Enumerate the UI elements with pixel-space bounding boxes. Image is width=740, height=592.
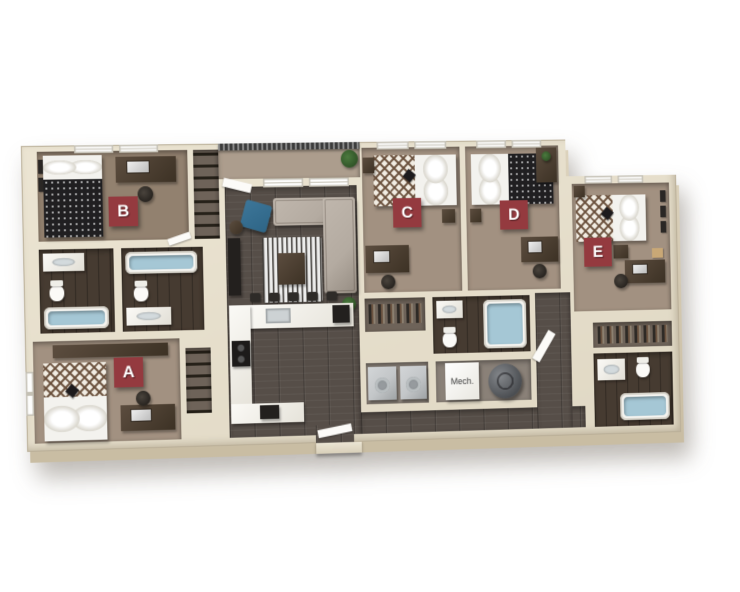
bed-a xyxy=(43,362,107,441)
bed-pillows xyxy=(43,155,102,180)
desk-a xyxy=(120,404,175,431)
nightstand xyxy=(470,209,481,223)
closet-e xyxy=(593,321,672,348)
vanity xyxy=(43,253,85,272)
mech-label: Mech. xyxy=(451,376,474,386)
bedroom-b-window xyxy=(74,145,113,153)
vanity xyxy=(436,300,463,318)
bathroom-2-floor xyxy=(121,247,204,332)
bed-pillows xyxy=(612,194,646,241)
unit-label-b: B xyxy=(108,196,138,226)
desk-e xyxy=(625,259,666,283)
bed-pillows xyxy=(44,396,108,442)
desk-c xyxy=(365,245,409,273)
tv-console xyxy=(228,238,242,295)
cooktop xyxy=(260,405,279,419)
bar-stool xyxy=(269,293,280,302)
bathroom-cd-floor xyxy=(432,295,530,354)
unit-label-e: E xyxy=(584,237,612,266)
coffee-table xyxy=(278,253,305,285)
bed-comforter xyxy=(43,362,107,398)
bedroom-c-window xyxy=(414,141,446,149)
stove xyxy=(232,341,251,367)
bathroom-1-floor xyxy=(39,248,115,333)
bed-e xyxy=(576,194,647,241)
closet-b xyxy=(193,150,220,239)
bar-stool xyxy=(307,292,318,301)
vanity xyxy=(126,307,171,326)
floor-plan: B A xyxy=(21,138,681,452)
bedroom-e-window xyxy=(584,176,612,184)
washer xyxy=(368,366,397,400)
bathtub xyxy=(125,251,197,274)
bed-b xyxy=(43,155,104,238)
toilet xyxy=(49,285,64,301)
countertop-appliance xyxy=(332,305,349,323)
pantry-closet xyxy=(185,347,211,413)
living-window xyxy=(309,177,349,186)
dryer xyxy=(400,366,427,400)
bed-pillows xyxy=(471,154,509,205)
closet-shelf-items xyxy=(598,325,668,344)
bedroom-c-window xyxy=(376,141,408,149)
bed-comforter xyxy=(576,195,614,242)
nightstand xyxy=(574,186,585,198)
closet-cd xyxy=(365,297,426,332)
nightstand xyxy=(613,245,628,259)
toilet xyxy=(443,332,457,348)
bar-stool xyxy=(326,291,337,300)
floor-plan-image: B A xyxy=(0,0,740,592)
bedroom-b-window xyxy=(119,144,158,152)
bar-stool xyxy=(250,293,261,302)
bed-comforter xyxy=(43,179,103,238)
living-window xyxy=(263,178,303,187)
wall-art xyxy=(660,190,666,202)
nightstand xyxy=(442,209,455,223)
unit-label-a: A xyxy=(114,357,144,388)
corkboard xyxy=(652,248,663,258)
toilet xyxy=(636,362,650,378)
desk-d xyxy=(521,236,559,262)
bedroom-e-window xyxy=(618,175,644,183)
floor-plan-walls: B A xyxy=(21,138,681,452)
hanging-clothes xyxy=(368,303,421,324)
wall-art xyxy=(661,221,667,233)
bathtub xyxy=(44,306,109,329)
bedroom-a-window xyxy=(26,372,35,416)
wall-art xyxy=(660,206,666,218)
sofa-sectional xyxy=(323,197,357,294)
unit-label-c: C xyxy=(393,198,422,228)
kitchen-sink xyxy=(266,308,291,323)
bathtub xyxy=(620,392,670,420)
toilet xyxy=(134,285,149,301)
bedroom-d-window xyxy=(476,140,506,148)
bathtub xyxy=(483,299,527,349)
balcony-plant xyxy=(341,150,358,168)
mech-unit: Mech. xyxy=(445,362,479,400)
hallway-floor xyxy=(535,292,573,428)
plant xyxy=(541,151,550,161)
bar-stool xyxy=(288,292,299,301)
bathroom-e-floor xyxy=(593,352,673,427)
unit-label-d: D xyxy=(500,200,528,230)
nightstand xyxy=(363,157,375,173)
desk-b xyxy=(115,156,176,183)
vanity xyxy=(597,359,625,381)
